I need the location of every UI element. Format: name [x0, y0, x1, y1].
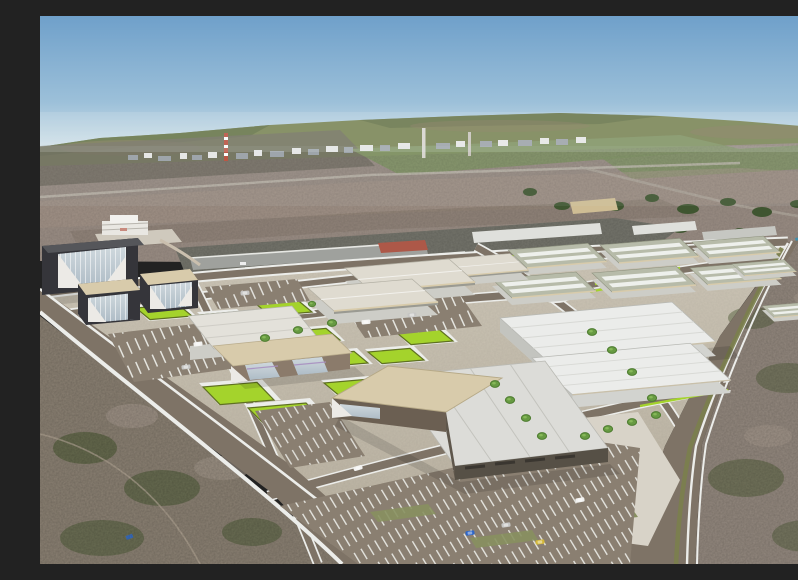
- office-tower-mid: [78, 279, 140, 325]
- horizon-haze: [40, 112, 798, 206]
- aerial-render: Aerial 3D rendering of a planned industr…: [40, 16, 798, 564]
- industrial-park-scene: Aerial 3D rendering of a planned industr…: [40, 16, 798, 564]
- office-tower-small: [140, 269, 198, 313]
